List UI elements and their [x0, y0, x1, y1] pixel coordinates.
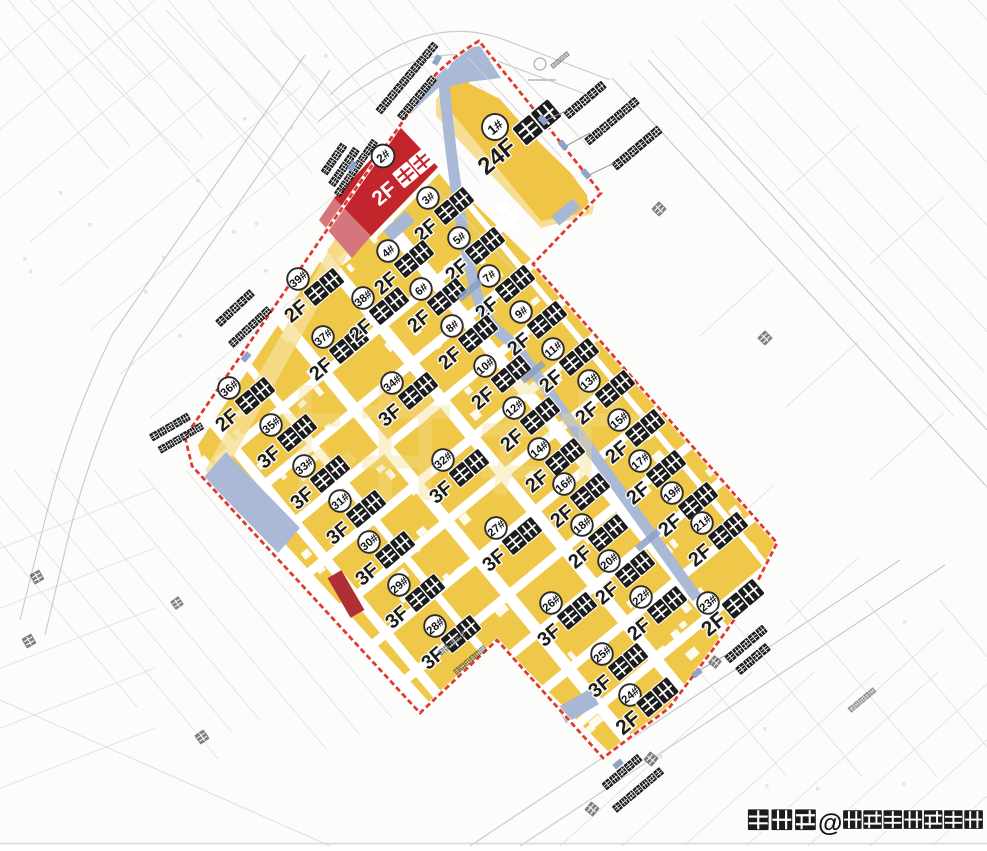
svg-text:@: @: [818, 810, 842, 838]
